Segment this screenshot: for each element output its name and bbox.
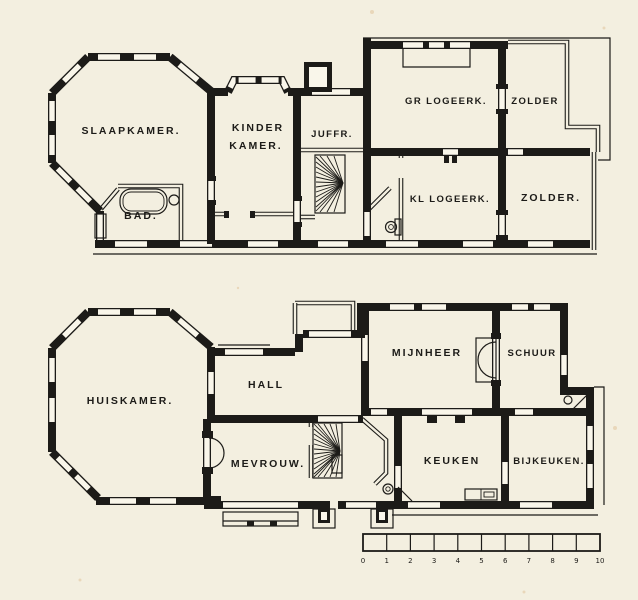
scale-tick-label: 3 [432,557,436,565]
toilet-fixture-upper [386,219,402,235]
scale-tick-label: 0 [361,557,365,565]
room-label-kinderkamer-line1: KINDER [232,122,284,134]
floor-plan-sheet: SLAAPKAMER. KINDER KAMER. JUFFR. GR LOGE… [0,0,638,600]
upper-thin-details [93,38,610,254]
porch-post-right [371,509,393,528]
room-label-kinderkamer-line2: KAMER. [229,140,282,152]
room-label-juffr: JUFFR. [311,129,353,140]
scale-tick-label: 9 [574,557,578,565]
staircase-lower [313,423,342,478]
room-label-hall: HALL [248,379,284,391]
room-label-keuken: KEUKEN [424,455,480,467]
toilet-fixture-lower [383,484,393,494]
kitchen-counter [465,489,497,500]
staircase-upper [315,155,345,213]
room-label-slaapkamer: SLAAPKAMER. [81,125,180,137]
upper-light-partitions [101,42,598,250]
room-label-huiskamer: HUISKAMER. [87,395,174,407]
room-label-schuur: SCHUUR [507,348,556,359]
room-label-kl-logeerk: KL LOGEERK. [410,194,490,205]
porch-post-left [313,509,335,528]
room-label-mijnheer: MIJNHEER [392,347,462,359]
floor-plan-drawing: SLAAPKAMER. KINDER KAMER. JUFFR. GR LOGE… [0,0,638,600]
upper-floor-plan: SLAAPKAMER. KINDER KAMER. JUFFR. GR LOGE… [52,38,610,254]
scale-tick-label: 1 [384,557,388,565]
room-label-zolder-lower: ZOLDER. [521,192,581,204]
scale-tick-labels: 0 1 2 3 4 5 6 7 8 9 10 [361,557,605,565]
scale-tick-label: 10 [596,557,605,565]
scale-tick-label: 8 [550,557,554,565]
room-label-zolder-upper: ZOLDER [511,96,558,107]
scale-tick-label: 7 [527,557,531,565]
room-label-mevrouw: MEVROUW. [231,458,305,470]
washbasin-fixture [169,195,179,205]
scale-tick-label: 5 [479,557,483,565]
ground-floor-plan: HUISKAMER. HALL MEVROUW. MIJNHEER SCHUUR… [52,303,604,528]
scale-tick-label: 6 [503,557,508,565]
room-label-bijkeuken: BIJKEUKEN. [513,456,585,467]
chimney-block [304,62,332,92]
scale-bar: 0 1 2 3 4 5 6 7 8 9 10 [361,534,605,565]
scale-tick-label: 2 [408,557,412,565]
fireplace-niche [209,438,224,468]
ground-thin-details [218,345,604,528]
room-label-bad: BAD. [124,210,158,222]
room-label-gr-logeerk: GR LOGEERK. [405,96,487,107]
scale-tick-label: 4 [456,557,461,565]
